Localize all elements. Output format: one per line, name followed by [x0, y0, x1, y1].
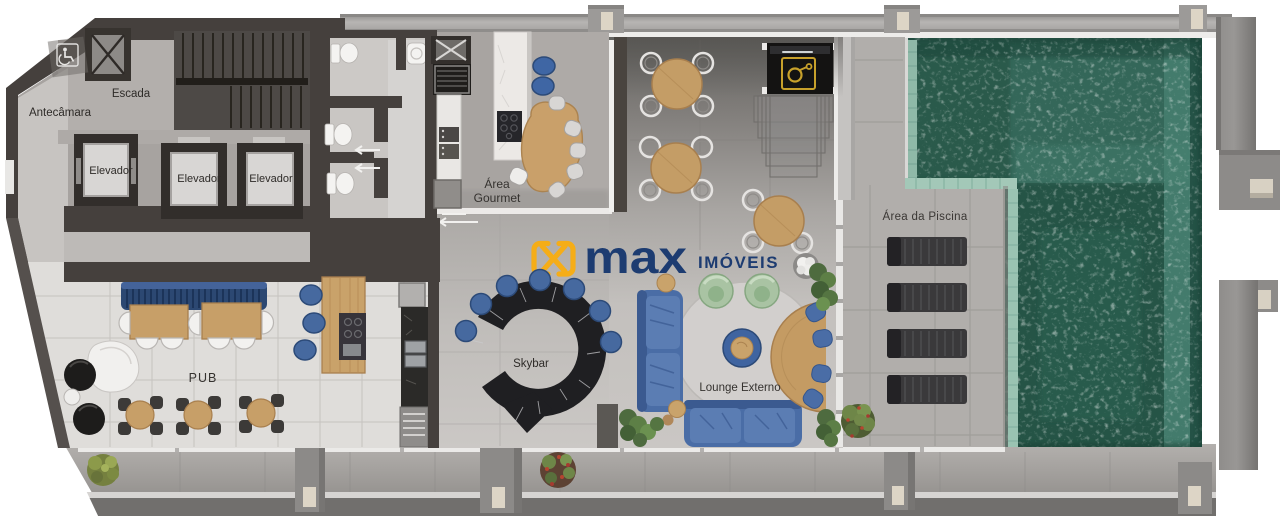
svg-text:Skybar: Skybar: [513, 358, 549, 370]
svg-text:Área: Área: [484, 176, 510, 191]
svg-text:Lounge Externo: Lounge Externo: [699, 382, 780, 394]
svg-text:Gourmet: Gourmet: [474, 191, 521, 205]
svg-text:max: max: [584, 231, 687, 283]
svg-text:Elevador: Elevador: [249, 173, 293, 185]
svg-text:Escada: Escada: [112, 88, 151, 100]
svg-text:Antecâmara: Antecâmara: [29, 107, 92, 119]
svg-text:Elevador: Elevador: [89, 165, 133, 177]
svg-text:IMÓVEIS: IMÓVEIS: [698, 253, 779, 272]
svg-text:Elevador: Elevador: [177, 173, 221, 185]
svg-text:PUB: PUB: [189, 371, 218, 385]
svg-text:Área da Piscina: Área da Piscina: [882, 210, 967, 223]
